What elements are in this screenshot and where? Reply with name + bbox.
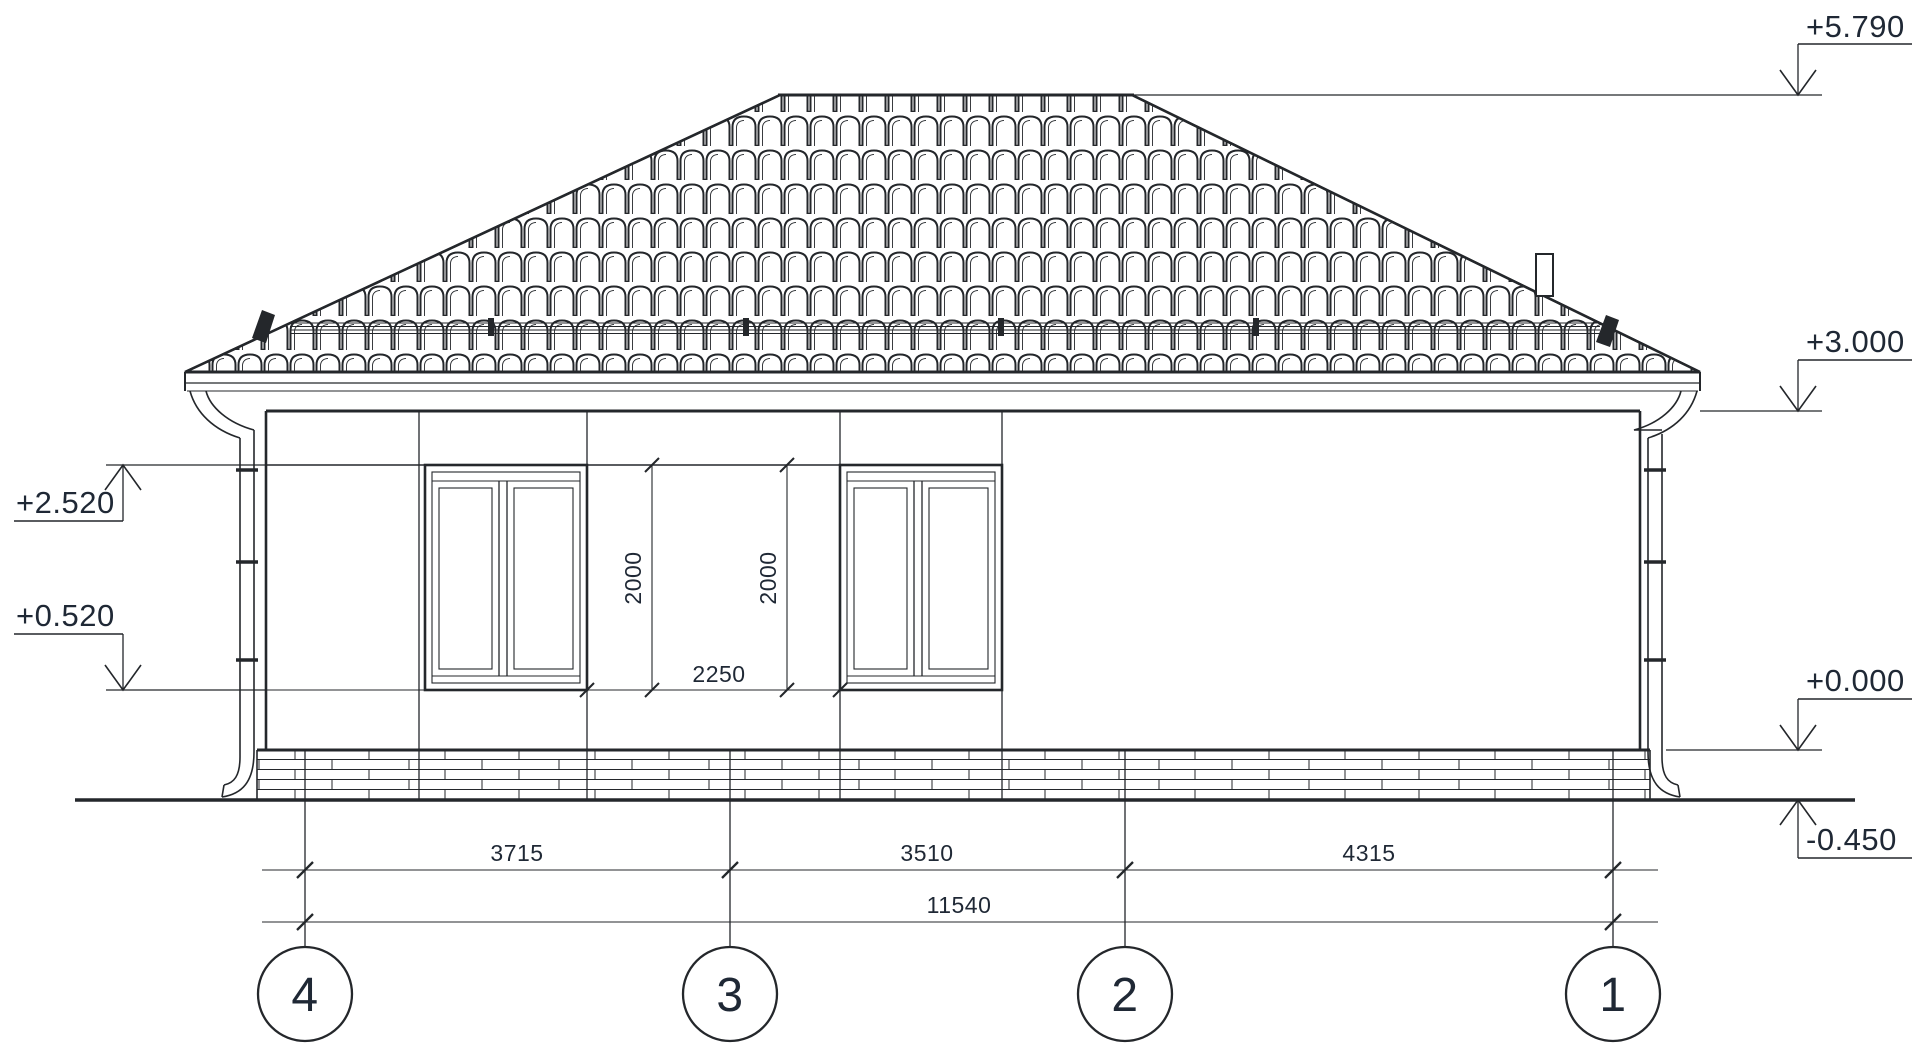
level-value-ground: -0.450 — [1806, 822, 1897, 857]
snow-guard-bracket — [488, 318, 494, 336]
dim-between-windows: 2250 — [692, 661, 745, 687]
axis-label-4: 4 — [291, 969, 318, 1022]
elevation-marker-ridge: +5.790 — [1132, 9, 1912, 95]
elevation-marker-ground: -0.450 — [1780, 800, 1912, 858]
dim-window-height-right: 2000 — [755, 551, 781, 604]
axis-bubbles: 4 3 2 1 — [258, 947, 1660, 1041]
elevation-drawing: +5.790 +3.000 +0.000 -0.450 +2.520 +0.52… — [0, 0, 1920, 1046]
snow-guard-bracket — [1253, 318, 1259, 336]
dimension-row-spans: 3715 3510 4315 — [262, 840, 1658, 878]
snow-guard-bracket — [998, 318, 1004, 336]
axis-label-1: 1 — [1599, 969, 1626, 1022]
roof-vent-pipe — [1536, 254, 1553, 296]
dim-span-2-1: 4315 — [1342, 840, 1395, 866]
level-value-ridge: +5.790 — [1806, 9, 1905, 44]
downspout-right — [1634, 391, 1697, 797]
dim-total-span: 11540 — [927, 892, 992, 918]
snow-guard-bracket — [743, 318, 749, 336]
window-left — [425, 465, 587, 690]
level-value-floor: +0.000 — [1806, 663, 1905, 698]
level-value-window-head: +2.520 — [16, 485, 115, 520]
window-frame — [425, 465, 587, 690]
axis-label-2: 2 — [1111, 969, 1138, 1022]
plinth — [257, 750, 1650, 800]
dimension-row-total: 11540 — [262, 892, 1658, 930]
window-right — [840, 465, 1002, 690]
window-dimensions: 2000 2000 2250 — [580, 458, 847, 697]
window-frame — [840, 465, 1002, 690]
level-value-eaves: +3.000 — [1806, 324, 1905, 359]
downspout-left — [190, 391, 258, 797]
dim-window-height-left: 2000 — [620, 551, 646, 604]
dim-span-3-2: 3510 — [900, 840, 953, 866]
elevation-marker-window-head: +2.520 — [14, 465, 266, 521]
dim-span-4-3: 3715 — [490, 840, 543, 866]
elevation-marker-window-sill: +0.520 — [14, 598, 266, 690]
elevation-marker-floor: +0.000 — [1666, 663, 1912, 750]
hipped-roof — [185, 95, 1700, 372]
level-value-window-sill: +0.520 — [16, 598, 115, 633]
elevation-drawing-sheet: +5.790 +3.000 +0.000 -0.450 +2.520 +0.52… — [0, 0, 1920, 1046]
elevation-marker-eaves: +3.000 — [1700, 324, 1912, 411]
axis-label-3: 3 — [716, 969, 743, 1022]
eaves-gutter — [185, 372, 1700, 391]
